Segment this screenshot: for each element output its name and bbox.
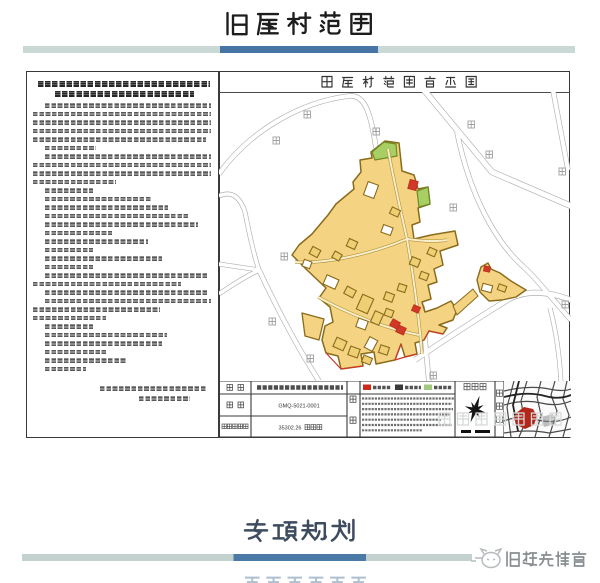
svg-text:35302.26: 35302.26 <box>279 425 302 431</box>
svg-text:GMQ-5021-0001: GMQ-5021-0001 <box>278 403 319 409</box>
